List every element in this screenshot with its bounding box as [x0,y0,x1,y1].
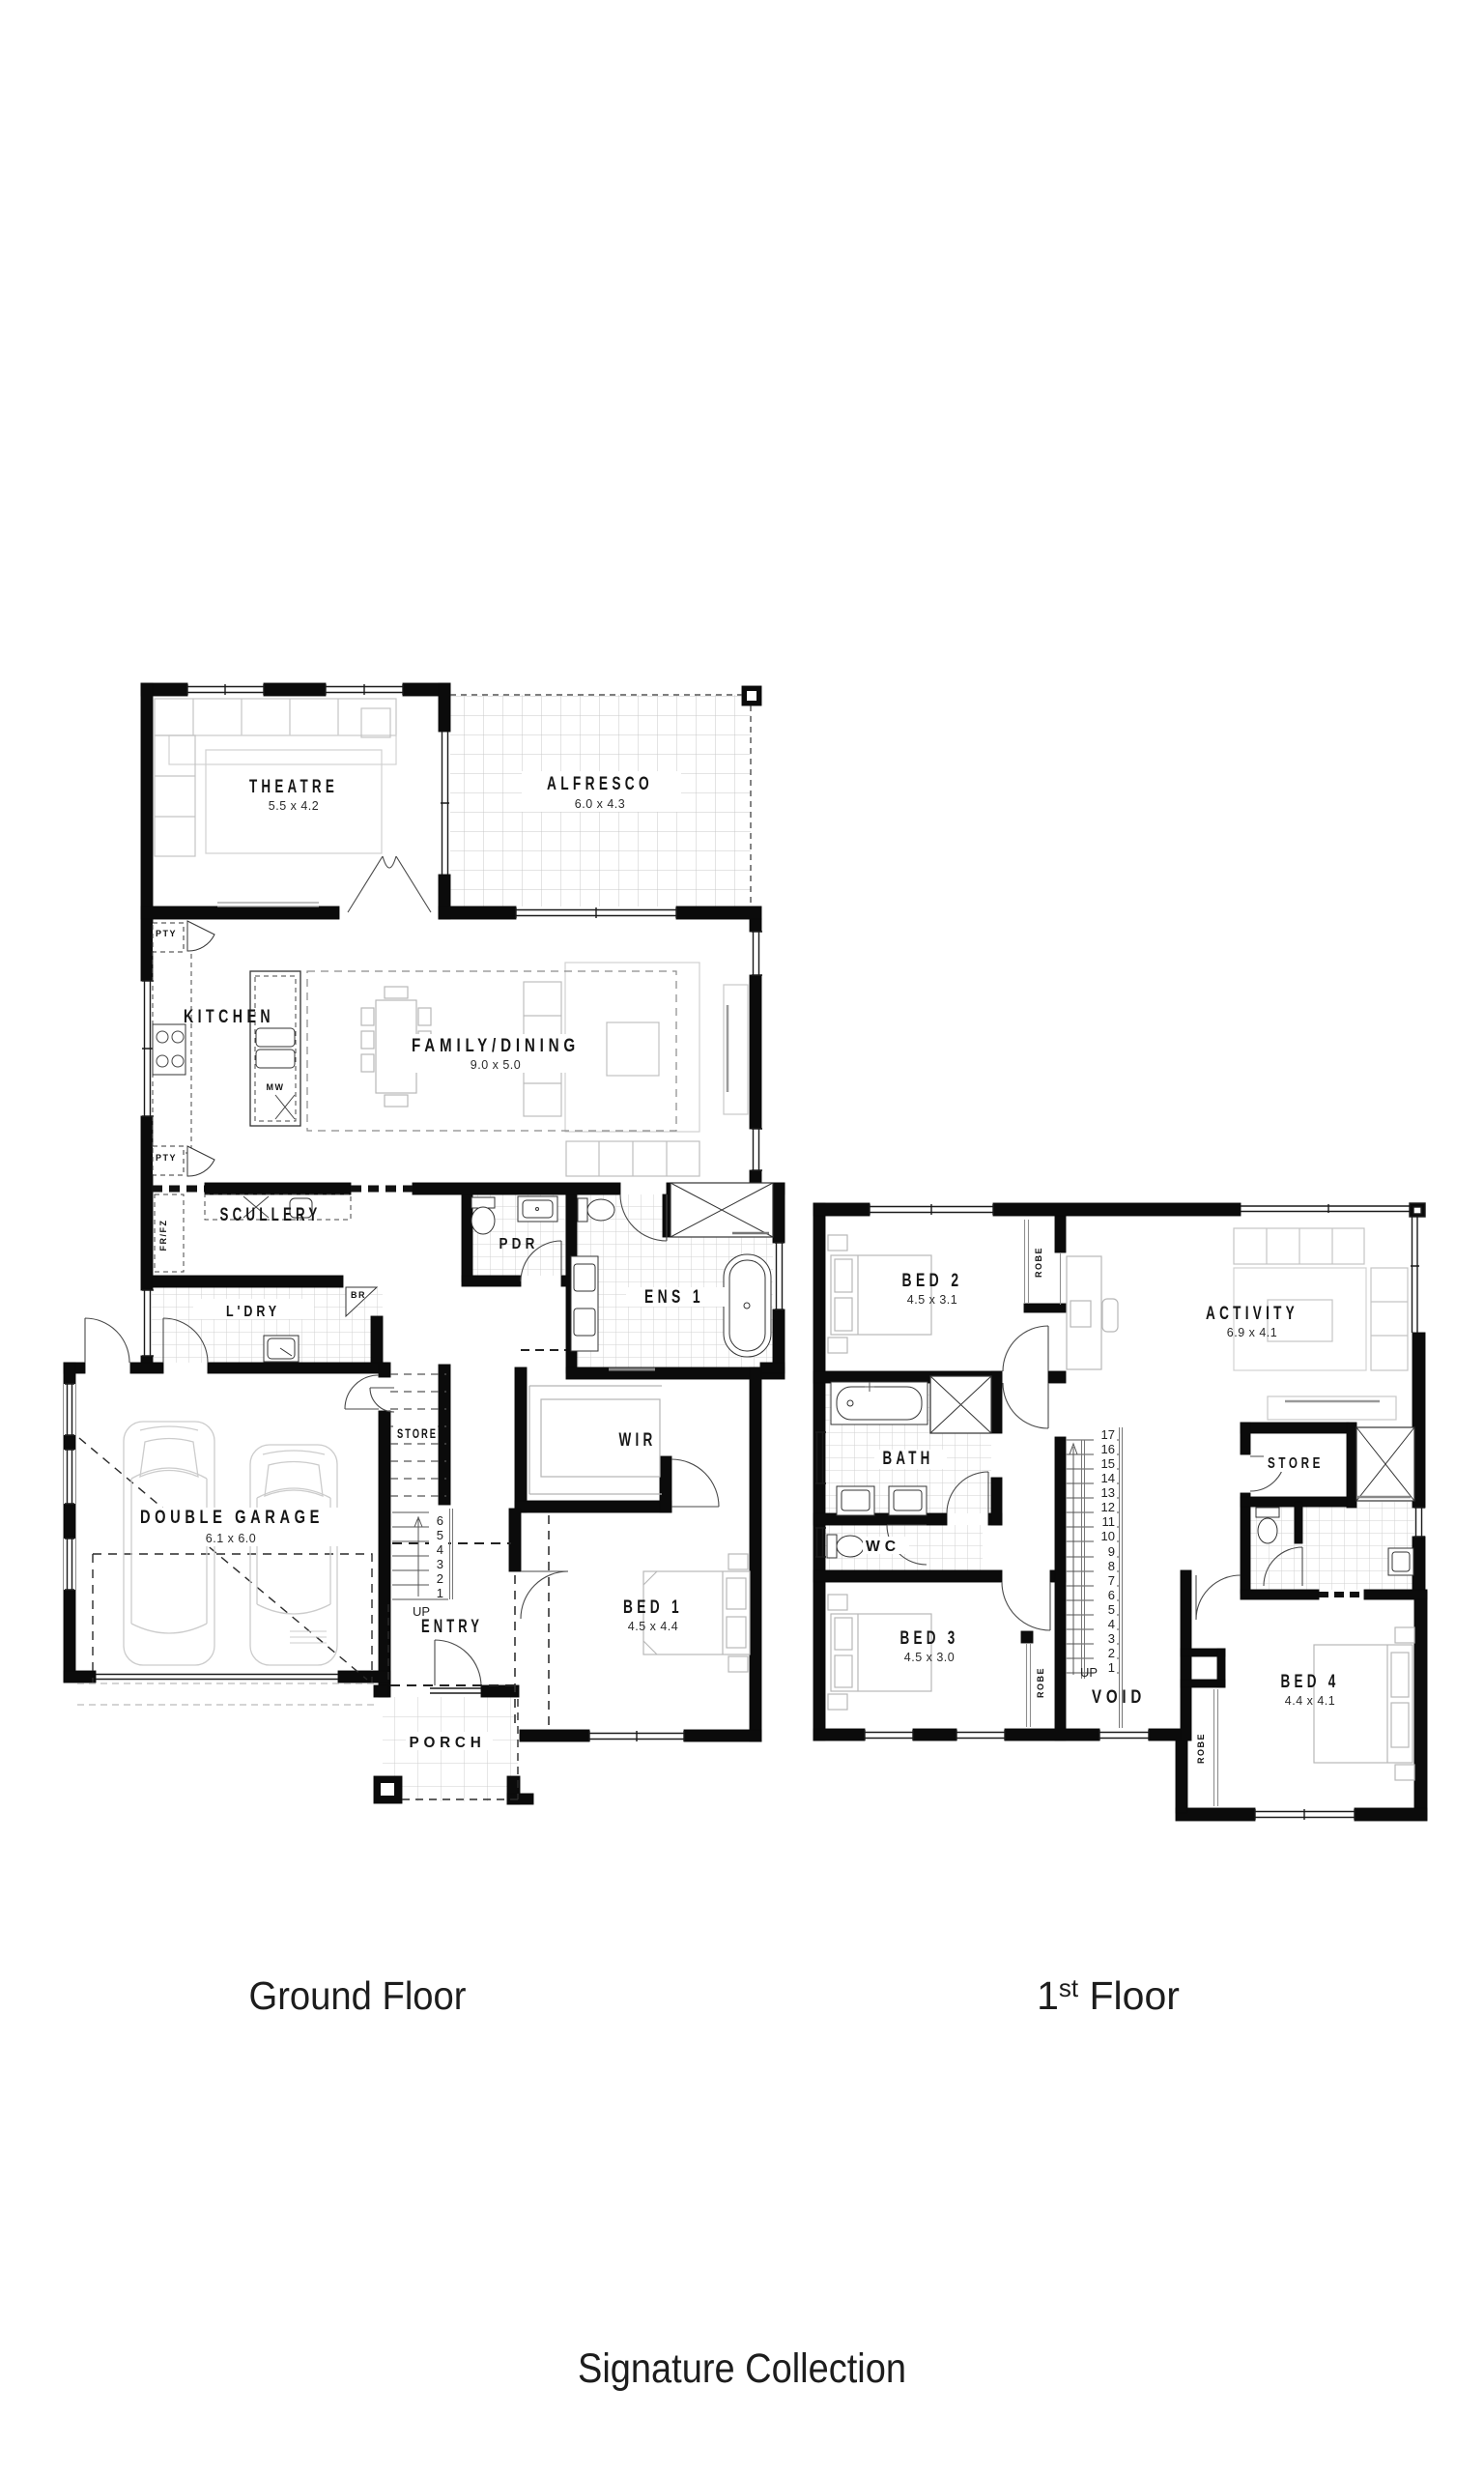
svg-text:9.0 x 5.0: 9.0 x 5.0 [471,1058,521,1072]
svg-text:ROBE: ROBE [1036,1667,1045,1698]
svg-text:WIR: WIR [619,1430,657,1451]
svg-text:10: 10 [1101,1529,1115,1543]
svg-text:Signature Collection: Signature Collection [578,2345,906,2392]
svg-text:BED 4: BED 4 [1281,1672,1340,1692]
svg-text:2: 2 [1108,1646,1115,1660]
svg-text:BR: BR [351,1290,366,1300]
svg-text:2: 2 [437,1571,443,1586]
svg-text:BED 2: BED 2 [902,1271,963,1291]
svg-text:5.5 x 4.2: 5.5 x 4.2 [269,799,319,813]
svg-text:4.5 x 3.0: 4.5 x 3.0 [904,1651,955,1664]
svg-text:Ground Floor: Ground Floor [249,1973,467,2018]
svg-text:14: 14 [1101,1471,1115,1485]
svg-text:6.0 x 4.3: 6.0 x 4.3 [575,797,625,811]
svg-text:6: 6 [437,1513,443,1528]
svg-text:12: 12 [1101,1500,1115,1514]
svg-text:4: 4 [437,1542,443,1557]
svg-text:ROBE: ROBE [1034,1247,1043,1278]
svg-text:5: 5 [1108,1602,1115,1617]
svg-text:6.9 x 4.1: 6.9 x 4.1 [1227,1326,1277,1339]
svg-text:BED 1: BED 1 [623,1597,683,1618]
svg-text:1st Floor: 1st Floor [1037,1973,1180,2018]
svg-text:ENTRY: ENTRY [421,1617,483,1637]
svg-text:FR/FZ: FR/FZ [158,1220,168,1251]
svg-text:16: 16 [1101,1442,1115,1456]
svg-text:1: 1 [1108,1660,1115,1675]
svg-text:ROBE: ROBE [1196,1733,1206,1764]
svg-text:11: 11 [1102,1514,1116,1529]
svg-text:4: 4 [1108,1617,1115,1631]
svg-text:ACTIVITY: ACTIVITY [1206,1304,1298,1324]
svg-text:1: 1 [437,1586,443,1600]
svg-text:4.5 x 3.1: 4.5 x 3.1 [907,1293,957,1307]
svg-text:L'DRY: L'DRY [226,1304,280,1320]
svg-text:UP: UP [1080,1665,1098,1680]
svg-text:4.4 x 4.1: 4.4 x 4.1 [1285,1694,1335,1708]
svg-text:STORE: STORE [397,1425,438,1441]
svg-text:VOID: VOID [1092,1687,1146,1708]
svg-text:PTY: PTY [156,929,177,938]
svg-text:17: 17 [1101,1427,1115,1442]
svg-text:6: 6 [1108,1588,1115,1602]
svg-text:3: 3 [1108,1631,1115,1646]
svg-text:BATH: BATH [883,1449,934,1469]
svg-text:ENS 1: ENS 1 [644,1287,704,1308]
svg-text:PTY: PTY [156,1153,177,1163]
svg-text:PORCH: PORCH [410,1735,486,1751]
svg-text:8: 8 [1108,1559,1115,1573]
svg-text:UP: UP [413,1604,430,1619]
svg-text:FAMILY/DINING: FAMILY/DINING [412,1036,580,1056]
svg-text:BED 3: BED 3 [900,1628,959,1649]
svg-text:3: 3 [437,1557,443,1571]
svg-text:MW: MW [267,1082,285,1092]
svg-text:6.1 x 6.0: 6.1 x 6.0 [206,1532,256,1545]
svg-text:DOUBLE GARAGE: DOUBLE GARAGE [140,1508,324,1528]
svg-text:STORE: STORE [1268,1455,1324,1472]
svg-text:PDR: PDR [499,1236,539,1252]
svg-text:4.5 x 4.4: 4.5 x 4.4 [628,1620,678,1633]
svg-text:WC: WC [866,1539,900,1555]
svg-text:13: 13 [1101,1485,1115,1500]
svg-text:ALFRESCO: ALFRESCO [547,774,653,794]
svg-text:THEATRE: THEATRE [249,777,338,797]
svg-text:7: 7 [1108,1573,1115,1588]
svg-text:5: 5 [437,1528,443,1542]
svg-text:SCULLERY: SCULLERY [220,1205,322,1225]
svg-text:9: 9 [1108,1544,1115,1559]
svg-text:KITCHEN: KITCHEN [184,1007,274,1027]
svg-text:15: 15 [1101,1456,1115,1471]
